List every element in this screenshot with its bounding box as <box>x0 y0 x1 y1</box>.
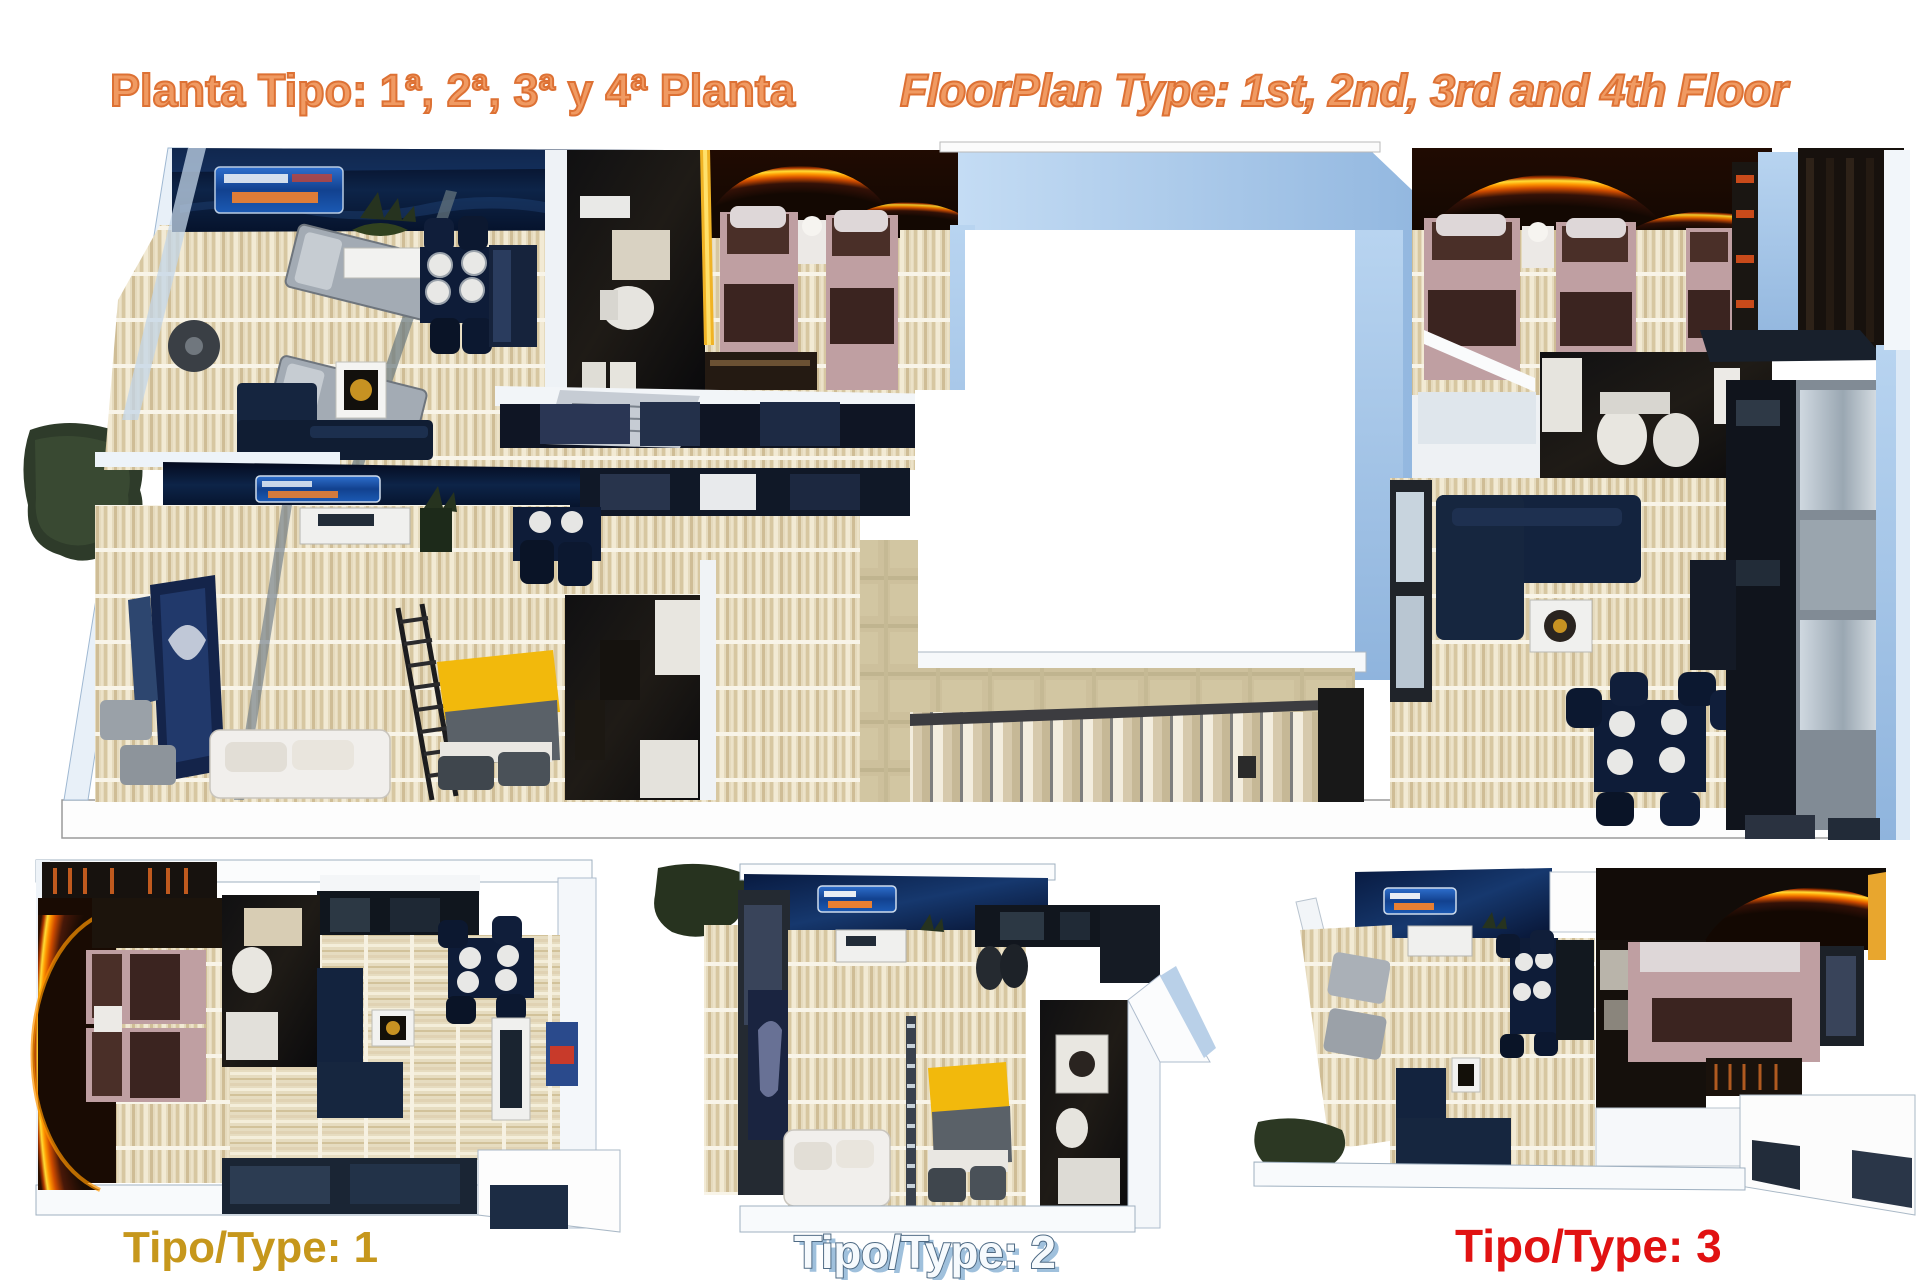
svg-text:Tipo/Type: 2: Tipo/Type: 2 <box>794 1226 1056 1278</box>
svg-text:FloorPlan Type: 1st, 2nd, 3rd: FloorPlan Type: 1st, 2nd, 3rd and 4th Fl… <box>900 65 1790 116</box>
svg-text:Planta Tipo: 1ª, 2ª, 3ª y 4ª P: Planta Tipo: 1ª, 2ª, 3ª y 4ª Planta <box>110 65 796 116</box>
svg-text:Tipo/Type: 1: Tipo/Type: 1 <box>123 1223 378 1272</box>
svg-text:Tipo/Type: 3: Tipo/Type: 3 <box>1455 1220 1722 1272</box>
